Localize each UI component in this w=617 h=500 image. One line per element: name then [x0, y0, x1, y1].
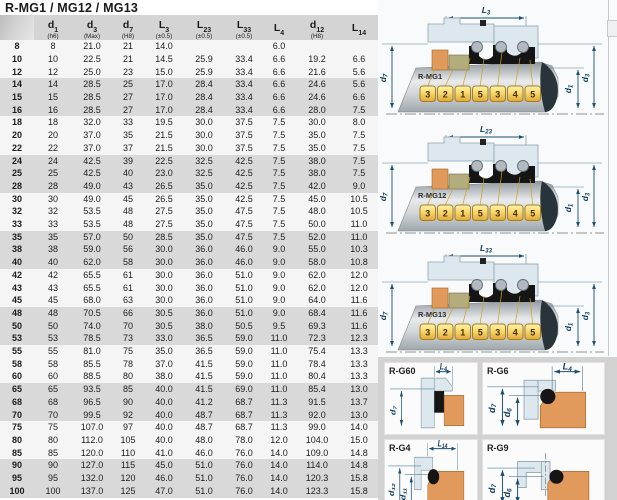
- table-row: 323253.54827.535.047.57.548.010.5: [0, 205, 378, 218]
- table-row: 585885.57837.041.559.011.078.413.3: [0, 358, 378, 371]
- table-row: 9090127.011545.051.076.014.0114.014.8: [0, 459, 378, 472]
- part-number-plates: 3 2 1 5 3 4 5: [420, 205, 541, 221]
- value-cell: 28.4: [184, 91, 224, 104]
- value-cell: 85.5: [72, 358, 112, 371]
- value-cell: 24: [34, 155, 72, 168]
- value-cell: [294, 40, 340, 53]
- value-cell: 28.4: [184, 78, 224, 91]
- value-cell: 112.0: [72, 434, 112, 447]
- value-cell: 137.0: [72, 485, 112, 498]
- value-cell: 33.4: [224, 104, 264, 117]
- size-cell: 10: [0, 53, 34, 66]
- value-cell: 50.5: [224, 320, 264, 333]
- svg-text:d7: d7: [390, 405, 399, 415]
- value-cell: 7.5: [264, 142, 294, 155]
- value-cell: 76.0: [224, 447, 264, 460]
- value-cell: 46.0: [224, 243, 264, 256]
- value-cell: 36.5: [184, 345, 224, 358]
- table-row: 454568.06330.036.051.09.064.011.6: [0, 294, 378, 307]
- value-cell: 22.5: [72, 53, 112, 66]
- value-cell: 40: [34, 256, 72, 269]
- value-cell: 47.0: [144, 485, 184, 498]
- svg-text:d11: d11: [400, 488, 409, 500]
- value-cell: 11.0: [264, 383, 294, 396]
- svg-text:5: 5: [530, 208, 535, 218]
- size-cell: 40: [0, 256, 34, 269]
- value-cell: 33: [34, 218, 72, 231]
- svg-text:1: 1: [460, 208, 465, 218]
- value-cell: 68.4: [294, 307, 340, 320]
- value-cell: 24.6: [294, 91, 340, 104]
- table-row: 8821.02114.06.0: [0, 40, 378, 53]
- value-cell: 7.5: [264, 193, 294, 206]
- value-cell: 7.5: [340, 155, 378, 168]
- value-cell: 14.8: [340, 447, 378, 460]
- value-cell: 33.0: [144, 332, 184, 345]
- value-cell: 12.0: [264, 434, 294, 447]
- value-cell: 6.6: [264, 66, 294, 79]
- svg-text:4: 4: [513, 327, 518, 337]
- value-cell: 30.0: [144, 294, 184, 307]
- value-cell: 30.5: [144, 320, 184, 333]
- value-cell: 37.5: [224, 142, 264, 155]
- value-cell: 21.5: [144, 129, 184, 142]
- seat: [421, 378, 434, 428]
- value-cell: 46.0: [224, 256, 264, 269]
- seat: [524, 380, 538, 419]
- value-cell: 52.0: [294, 231, 340, 244]
- value-cell: 25.9: [184, 66, 224, 79]
- value-cell: 107.0: [72, 421, 112, 434]
- size-cell: 45: [0, 294, 34, 307]
- card-r-g4: R-G4 L14 d12: [384, 439, 478, 500]
- value-cell: 45: [112, 193, 144, 206]
- value-cell: 7.5: [264, 180, 294, 193]
- value-cell: 19.5: [144, 116, 184, 129]
- value-cell: 28.4: [184, 104, 224, 117]
- value-cell: 7.5: [264, 205, 294, 218]
- value-cell: 35.0: [184, 218, 224, 231]
- size-cell: 14: [0, 78, 34, 91]
- value-cell: 58: [34, 358, 72, 371]
- value-cell: 48: [112, 218, 144, 231]
- value-cell: 8: [34, 40, 72, 53]
- value-cell: 35.0: [184, 231, 224, 244]
- value-cell: 36.0: [184, 269, 224, 282]
- column-header: d12(H8): [294, 15, 340, 40]
- value-cell: 68.0: [72, 294, 112, 307]
- size-cell: 12: [0, 66, 34, 79]
- value-cell: 48.7: [184, 409, 224, 422]
- table-row: 555581.07535.036.559.011.075.413.3: [0, 345, 378, 358]
- value-cell: 28.0: [294, 104, 340, 117]
- value-cell: 75: [34, 421, 72, 434]
- value-cell: 80: [34, 434, 72, 447]
- value-cell: 36.0: [184, 307, 224, 320]
- value-cell: 42.5: [224, 193, 264, 206]
- value-cell: 10.3: [340, 243, 378, 256]
- table-row: 484870.56630.536.051.09.068.411.6: [0, 307, 378, 320]
- seal-drawing-r-mg13: L33 R-MG13: [380, 238, 612, 357]
- value-cell: 8.0: [340, 116, 378, 129]
- value-cell: 15.0: [340, 434, 378, 447]
- value-cell: 92: [112, 409, 144, 422]
- value-cell: 10: [34, 53, 72, 66]
- value-cell: 7.5: [264, 155, 294, 168]
- table-row: 505074.07030.538.050.59.569.311.6: [0, 320, 378, 333]
- value-cell: 23: [112, 66, 144, 79]
- value-cell: 35.0: [144, 345, 184, 358]
- table-row: 141428.52517.028.433.46.624.65.6: [0, 78, 378, 91]
- value-cell: 6.6: [340, 91, 378, 104]
- value-cell: 13.0: [340, 409, 378, 422]
- value-cell: 12: [34, 66, 72, 79]
- value-cell: 57.0: [72, 231, 112, 244]
- detail-cards: R-G60 L4 d7: [378, 357, 617, 500]
- value-cell: 9.0: [340, 180, 378, 193]
- value-cell: 78.0: [224, 434, 264, 447]
- value-cell: 11.0: [264, 370, 294, 383]
- value-cell: 51.0: [224, 307, 264, 320]
- value-cell: 11.6: [340, 294, 378, 307]
- diagram-label: R-MG13: [418, 310, 446, 319]
- value-cell: 41.2: [184, 396, 224, 409]
- value-cell: 58: [112, 256, 144, 269]
- size-cell: 85: [0, 447, 34, 460]
- value-cell: 28.5: [72, 104, 112, 117]
- size-cell: 25: [0, 167, 34, 180]
- value-cell: 99.5: [72, 409, 112, 422]
- size-cell: 90: [0, 459, 34, 472]
- value-cell: 105: [112, 434, 144, 447]
- value-cell: 70: [112, 320, 144, 333]
- value-cell: 36.5: [184, 332, 224, 345]
- value-cell: 39: [112, 155, 144, 168]
- size-cell: 70: [0, 409, 34, 422]
- card-label: R-G6: [487, 366, 509, 376]
- size-cell: 35: [0, 231, 34, 244]
- value-cell: 32.0: [72, 116, 112, 129]
- value-cell: 85: [34, 447, 72, 460]
- value-cell: 41.5: [184, 370, 224, 383]
- value-cell: 28: [34, 180, 72, 193]
- svg-text:d3: d3: [580, 192, 592, 201]
- value-cell: 6.6: [264, 53, 294, 66]
- value-cell: 7.5: [264, 231, 294, 244]
- value-cell: 15.8: [340, 472, 378, 485]
- svg-text:d7: d7: [487, 484, 498, 494]
- value-cell: 68.7: [224, 396, 264, 409]
- value-cell: 23.0: [144, 167, 184, 180]
- value-cell: 11.0: [264, 358, 294, 371]
- value-cell: 14.0: [264, 447, 294, 460]
- seat-arm: [434, 378, 452, 391]
- value-cell: 76.0: [224, 485, 264, 498]
- value-cell: 50.0: [294, 218, 340, 231]
- value-cell: 120.3: [294, 472, 340, 485]
- value-cell: 12.3: [340, 332, 378, 345]
- value-cell: 120.0: [72, 447, 112, 460]
- svg-text:L23: L23: [480, 124, 493, 136]
- value-cell: 68.7: [224, 409, 264, 422]
- value-cell: 33.4: [224, 78, 264, 91]
- svg-text:d7: d7: [487, 403, 498, 413]
- value-cell: 27.5: [144, 218, 184, 231]
- svg-text:L4: L4: [563, 363, 573, 373]
- dimension-table-section: R-MG1 / MG12 / MG13 d1(h6)d3(Max)d7(H8)L…: [0, 0, 378, 500]
- size-cell: 24: [0, 155, 34, 168]
- card-r-g9: R-G9 d7 d6: [482, 439, 605, 500]
- value-cell: 37.0: [144, 358, 184, 371]
- value-cell: 10.8: [340, 256, 378, 269]
- value-cell: 28.5: [72, 91, 112, 104]
- svg-text:5: 5: [478, 327, 483, 337]
- svg-text:1: 1: [460, 89, 465, 99]
- value-cell: 78: [112, 358, 144, 371]
- table-row: 101022.52114.525.933.46.619.26.6: [0, 53, 378, 66]
- card-label: R-G60: [389, 366, 416, 376]
- value-cell: 61: [112, 282, 144, 295]
- value-cell: 27.5: [144, 205, 184, 218]
- svg-text:d3: d3: [580, 73, 592, 82]
- value-cell: 51.0: [224, 294, 264, 307]
- value-cell: 53.5: [72, 218, 112, 231]
- column-header: L3(±0.5): [144, 15, 184, 40]
- value-cell: 36.0: [184, 256, 224, 269]
- value-cell: 59.0: [224, 332, 264, 345]
- svg-text:1: 1: [460, 327, 465, 337]
- value-cell: 95: [34, 472, 72, 485]
- column-header: L4: [264, 15, 294, 40]
- value-cell: 33.4: [224, 91, 264, 104]
- value-cell: 9.0: [264, 256, 294, 269]
- value-cell: 48.7: [184, 421, 224, 434]
- value-cell: 51.0: [184, 485, 224, 498]
- value-cell: 99.0: [294, 421, 340, 434]
- value-cell: [184, 40, 224, 53]
- value-cell: 60: [34, 370, 72, 383]
- value-cell: 62.0: [72, 256, 112, 269]
- value-cell: 14: [34, 78, 72, 91]
- page-title: R-MG1 / MG12 / MG13: [0, 0, 378, 15]
- value-cell: 63: [112, 294, 144, 307]
- value-cell: 7.5: [264, 218, 294, 231]
- value-cell: 125: [112, 485, 144, 498]
- table-row: 656593.58540.041.569.011.085.413.0: [0, 383, 378, 396]
- svg-text:d12: d12: [388, 483, 397, 497]
- value-cell: 96.5: [72, 396, 112, 409]
- value-cell: 35.0: [184, 193, 224, 206]
- value-cell: 65: [34, 383, 72, 396]
- value-cell: 17.0: [144, 104, 184, 117]
- corner-header-cell: [0, 15, 34, 40]
- o-ring: [549, 470, 563, 484]
- table-row: 383859.05630.036.046.09.055.010.3: [0, 243, 378, 256]
- value-cell: 78.4: [294, 358, 340, 371]
- svg-text:d7: d7: [380, 192, 390, 201]
- value-cell: 65.5: [72, 269, 112, 282]
- value-cell: 38.0: [184, 320, 224, 333]
- value-cell: 51.0: [224, 269, 264, 282]
- table-row: 242442.53922.532.542.57.538.07.5: [0, 155, 378, 168]
- svg-text:d1: d1: [563, 322, 575, 331]
- value-cell: 9.0: [264, 294, 294, 307]
- table-row: 161628.52717.028.433.46.628.07.5: [0, 104, 378, 117]
- value-cell: 17.0: [144, 91, 184, 104]
- value-cell: 12.0: [340, 282, 378, 295]
- value-cell: 42: [34, 269, 72, 282]
- value-cell: 40.0: [144, 409, 184, 422]
- value-cell: 40.0: [144, 434, 184, 447]
- svg-text:d1: d1: [563, 84, 575, 93]
- value-cell: 46.0: [184, 447, 224, 460]
- datasheet-page: R-MG1 / MG12 / MG13 d1(h6)d3(Max)d7(H8)L…: [0, 0, 617, 500]
- size-cell: 65: [0, 383, 34, 396]
- value-cell: 16: [34, 104, 72, 117]
- value-cell: 11.0: [340, 231, 378, 244]
- value-cell: 30.0: [184, 142, 224, 155]
- value-cell: 6.0: [264, 40, 294, 53]
- size-cell: 30: [0, 193, 34, 206]
- card-r-g6: R-G6 L4 d7: [482, 362, 605, 435]
- value-cell: 5.6: [340, 66, 378, 79]
- value-cell: 93.5: [72, 383, 112, 396]
- value-cell: 43: [112, 180, 144, 193]
- value-cell: 7.5: [340, 104, 378, 117]
- value-cell: 13.3: [340, 345, 378, 358]
- value-cell: 109.0: [294, 447, 340, 460]
- o-ring: [428, 469, 440, 484]
- value-cell: 14.0: [264, 459, 294, 472]
- value-cell: 25.0: [72, 66, 112, 79]
- value-cell: 10.5: [340, 193, 378, 206]
- table-row: 707099.59240.048.768.711.392.013.0: [0, 409, 378, 422]
- value-cell: 32.5: [184, 167, 224, 180]
- value-cell: 59.0: [72, 243, 112, 256]
- value-cell: 19.2: [294, 53, 340, 66]
- value-cell: 5.6: [340, 78, 378, 91]
- table-row: 202037.03521.530.037.57.535.07.5: [0, 129, 378, 142]
- value-cell: 114.0: [294, 459, 340, 472]
- value-cell: 40: [112, 167, 144, 180]
- value-cell: 53: [34, 332, 72, 345]
- size-cell: 75: [0, 421, 34, 434]
- value-cell: 132.0: [72, 472, 112, 485]
- value-cell: 11.3: [264, 409, 294, 422]
- value-cell: 59.0: [224, 358, 264, 371]
- value-cell: 24.6: [294, 78, 340, 91]
- value-cell: 21.5: [144, 142, 184, 155]
- value-cell: [340, 40, 378, 53]
- svg-text:2: 2: [443, 327, 448, 337]
- svg-text:L14: L14: [438, 440, 448, 450]
- value-cell: 42.5: [224, 180, 264, 193]
- diagram-label: R-MG12: [418, 191, 446, 200]
- value-cell: 37.0: [72, 142, 112, 155]
- value-cell: 56: [112, 243, 144, 256]
- value-cell: 50: [34, 320, 72, 333]
- value-cell: 28.5: [144, 231, 184, 244]
- value-cell: 25: [34, 167, 72, 180]
- value-cell: 51.0: [224, 282, 264, 295]
- value-cell: 72.3: [294, 332, 340, 345]
- value-cell: 69.0: [224, 383, 264, 396]
- table-row: 9595132.012046.051.076.014.0120.315.8: [0, 472, 378, 485]
- svg-text:L33: L33: [480, 243, 493, 255]
- value-cell: 92.0: [294, 409, 340, 422]
- table-header-row: d1(h6)d3(Max)d7(H8)L3(±0.5)L23(±0.5)L33(…: [0, 15, 378, 40]
- svg-text:d6: d6: [502, 408, 513, 418]
- svg-text:3: 3: [425, 327, 430, 337]
- value-cell: 6.6: [264, 104, 294, 117]
- part-number-plates: 3 2 1 5 3 4 5: [420, 324, 541, 340]
- value-cell: 7.5: [264, 116, 294, 129]
- value-cell: 42.5: [72, 155, 112, 168]
- value-cell: 48: [34, 307, 72, 320]
- value-cell: 32: [34, 205, 72, 218]
- size-cell: 32: [0, 205, 34, 218]
- diagram-r-mg13: L33 R-MG13: [380, 238, 612, 357]
- table-row: 282849.04326.535.042.57.542.09.0: [0, 180, 378, 193]
- value-cell: 50: [112, 231, 144, 244]
- value-cell: 73: [112, 332, 144, 345]
- size-cell: 48: [0, 307, 34, 320]
- size-cell: 18: [0, 116, 34, 129]
- svg-text:3: 3: [495, 208, 500, 218]
- table-row: 151528.52717.028.433.46.624.66.6: [0, 91, 378, 104]
- value-cell: 75: [112, 345, 144, 358]
- value-cell: 14.8: [340, 459, 378, 472]
- value-cell: 30.0: [184, 129, 224, 142]
- value-cell: 30.0: [184, 116, 224, 129]
- size-cell: 20: [0, 129, 34, 142]
- table-row: 424265.56130.036.051.09.062.012.0: [0, 269, 378, 282]
- table-row: 535378.57333.036.559.011.072.312.3: [0, 332, 378, 345]
- size-table: d1(h6)d3(Max)d7(H8)L3(±0.5)L23(±0.5)L33(…: [0, 15, 378, 498]
- value-cell: 30.0: [144, 269, 184, 282]
- value-cell: 11.6: [340, 320, 378, 333]
- value-cell: 37.5: [224, 129, 264, 142]
- value-cell: 110: [112, 447, 144, 460]
- value-cell: 42.0: [294, 180, 340, 193]
- value-cell: 9.0: [264, 282, 294, 295]
- value-cell: 12.0: [340, 269, 378, 282]
- value-cell: 41.5: [184, 358, 224, 371]
- svg-text:5: 5: [478, 208, 483, 218]
- value-cell: 104.0: [294, 434, 340, 447]
- size-cell: 42: [0, 269, 34, 282]
- value-cell: 36.0: [184, 243, 224, 256]
- value-cell: 90: [112, 396, 144, 409]
- value-cell: 53.5: [72, 205, 112, 218]
- value-cell: 15.8: [340, 485, 378, 498]
- value-cell: 47.5: [224, 205, 264, 218]
- card-label: R-G9: [487, 443, 509, 453]
- housing: [444, 395, 464, 425]
- value-cell: 64.0: [294, 294, 340, 307]
- svg-text:d6: d6: [502, 488, 513, 498]
- value-cell: 68.7: [224, 421, 264, 434]
- main-diagrams: L3 R-MG1: [378, 0, 617, 357]
- svg-text:2: 2: [443, 89, 448, 99]
- seal-drawing-r-mg12: L23 R-MG12: [380, 119, 612, 238]
- column-header: d3(Max): [72, 15, 112, 40]
- value-cell: 62.0: [294, 282, 340, 295]
- value-cell: 43: [34, 282, 72, 295]
- svg-text:3: 3: [495, 327, 500, 337]
- size-table-body: 8821.02114.06.0101022.52114.525.933.46.6…: [0, 40, 378, 497]
- value-cell: 47.5: [224, 231, 264, 244]
